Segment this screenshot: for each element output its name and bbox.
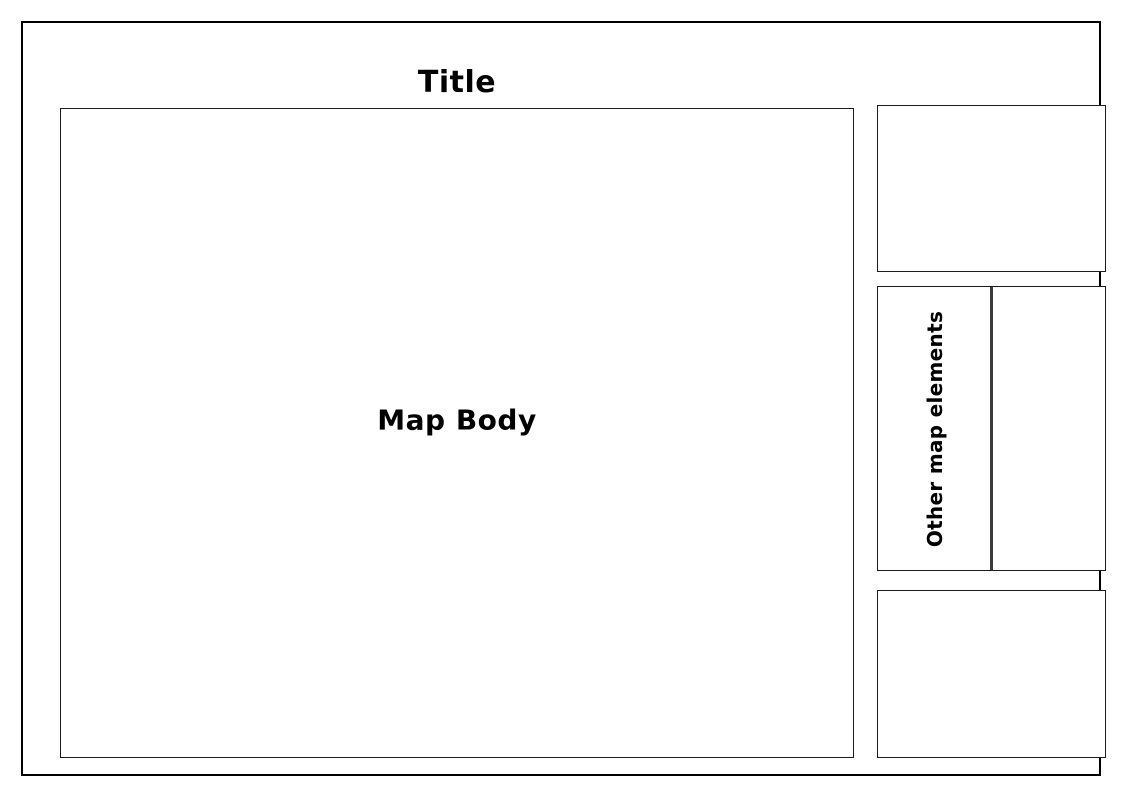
divider-line (990, 287, 993, 570)
page-frame: Title Map Body Other map elements (21, 21, 1101, 776)
other-map-elements-box: Other map elements (877, 286, 1106, 571)
figure-title: Title (60, 65, 854, 101)
side-box-bottom (877, 590, 1106, 758)
map-body-label: Map Body (377, 404, 536, 437)
other-map-elements-label: Other map elements (923, 310, 947, 546)
map-layout-figure: Title Map Body Other map elements (0, 0, 1122, 793)
map-body-box: Map Body (60, 108, 854, 758)
side-box-top (877, 105, 1106, 272)
